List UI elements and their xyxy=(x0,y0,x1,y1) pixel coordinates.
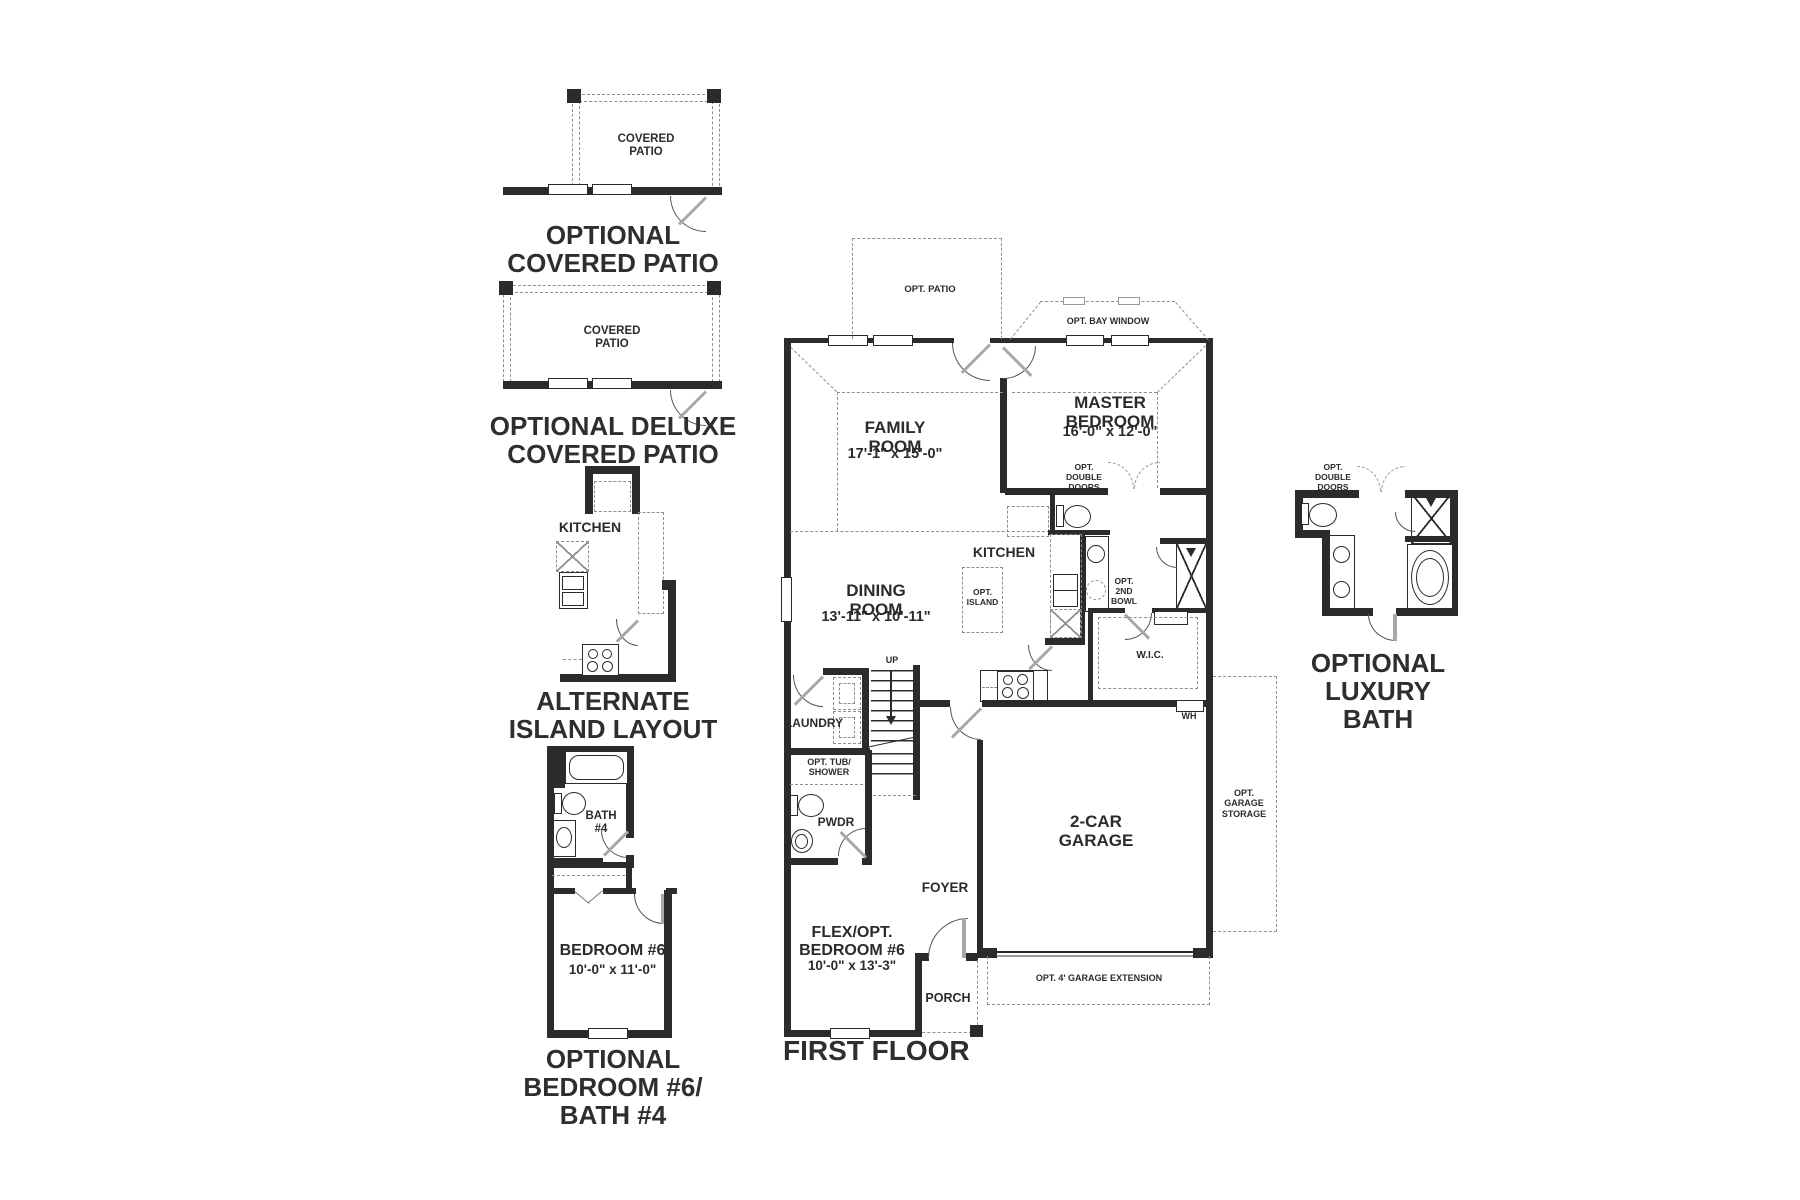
wall-garage-left xyxy=(977,740,983,955)
wall xyxy=(865,750,872,865)
wall xyxy=(788,748,870,755)
counter xyxy=(638,512,664,614)
opt-island-label: OPT. ISLAND xyxy=(963,588,1002,608)
wall xyxy=(913,665,920,800)
wall xyxy=(1396,608,1458,616)
burner xyxy=(1017,674,1028,685)
ceiling-line xyxy=(837,392,1003,393)
room-label: KITCHEN xyxy=(544,520,636,536)
wall xyxy=(603,888,636,894)
window xyxy=(588,1028,628,1039)
ceiling-line xyxy=(790,347,837,392)
inset-caption: OPTIONAL COVERED PATIO xyxy=(493,221,733,277)
toilet-tank xyxy=(1301,503,1309,525)
opt-double-door-arc xyxy=(1381,466,1405,492)
opt-2nd-bowl-label: OPT. 2ND BOWL xyxy=(1104,577,1144,606)
opt-cabinet xyxy=(1007,506,1049,537)
burner xyxy=(602,661,613,672)
shower-head xyxy=(1186,548,1196,557)
room-label: COVERED PATIO xyxy=(572,133,720,159)
bay-window-line xyxy=(1040,301,1175,302)
wall xyxy=(550,862,632,868)
toilet-tank xyxy=(1056,505,1064,527)
opt-appliance-box xyxy=(1050,609,1081,638)
stove xyxy=(582,644,619,676)
opt-bay-label: OPT. BAY WINDOW xyxy=(1058,316,1158,326)
toilet-tank xyxy=(554,793,562,814)
porch-edge xyxy=(977,960,978,1030)
room-label: BEDROOM #6 xyxy=(540,942,685,960)
door-arc xyxy=(634,894,664,924)
burner xyxy=(602,649,612,659)
stove xyxy=(997,671,1034,701)
sink-bowl xyxy=(1333,581,1350,598)
wall xyxy=(788,858,838,865)
inset-caption: OPTIONAL BEDROOM #6/ BATH #4 xyxy=(493,1045,733,1129)
wall xyxy=(1322,608,1373,616)
bathtub-basin xyxy=(569,755,624,780)
room-dims: 10'-0" x 13'-3" xyxy=(777,958,927,973)
opt-patio-label: OPT. PATIO xyxy=(880,285,980,296)
opt-double-doors-label: OPT. DOUBLE DOORS xyxy=(1307,463,1359,492)
bay-window-line xyxy=(1010,302,1041,340)
island-opt-box xyxy=(556,541,589,572)
sink-bowl xyxy=(1087,545,1105,563)
wall xyxy=(626,862,632,890)
sink-bowl xyxy=(556,827,572,848)
window xyxy=(1066,335,1104,346)
front-door-leaf xyxy=(962,918,966,958)
patio-post xyxy=(707,89,721,103)
toilet-bowl xyxy=(1309,503,1337,527)
patio-post xyxy=(567,89,581,103)
stairs-lower xyxy=(871,753,913,779)
bathtub-basin xyxy=(1416,558,1444,597)
toilet-tank xyxy=(790,795,798,816)
inset-caption: OPTIONAL DELUXE COVERED PATIO xyxy=(468,412,758,468)
porch-edge xyxy=(922,1032,972,1033)
opt-extension-label: OPT. 4' GARAGE EXTENSION xyxy=(1018,973,1180,983)
stairs-arrow-head xyxy=(886,716,896,725)
wall-divider xyxy=(1000,378,1007,493)
inset-caption: OPTIONAL LUXURY BATH xyxy=(1288,649,1468,733)
burner xyxy=(1003,675,1013,685)
wall xyxy=(1050,495,1055,533)
window xyxy=(548,184,588,195)
wall xyxy=(1045,638,1085,645)
opt-double-door-arc xyxy=(1108,462,1134,489)
opt-storage-label: OPT. GARAGE STORAGE xyxy=(1211,788,1277,819)
window xyxy=(781,577,792,622)
wall xyxy=(1088,608,1093,703)
bifold-door xyxy=(588,890,603,903)
plan-caption: FIRST FLOOR xyxy=(783,1036,1013,1066)
stairs-ceiling-line xyxy=(868,795,916,796)
toilet-bowl xyxy=(1064,505,1091,528)
opt-double-doors-label: OPT. DOUBLE DOORS xyxy=(1058,463,1110,492)
opt-2nd-bowl xyxy=(1086,580,1106,600)
shower-door-arc xyxy=(1156,547,1177,568)
wall xyxy=(668,588,676,682)
wh-label: WH xyxy=(1174,711,1204,721)
bay-window-tick xyxy=(1118,297,1140,305)
wall xyxy=(1088,608,1125,613)
shower-door-arc xyxy=(1395,512,1415,532)
toilet-bowl xyxy=(798,794,824,817)
burner xyxy=(1017,687,1029,699)
island-cabinet xyxy=(562,576,584,590)
stairs-up-label: UP xyxy=(878,655,906,665)
washer-inner xyxy=(839,683,855,704)
room-label: W.I.C. xyxy=(1125,650,1175,661)
floor-plan-canvas: COVERED PATIO OPTIONAL COVERED PATIO COV… xyxy=(0,0,1800,1200)
window xyxy=(592,378,632,389)
opt-double-door-arc xyxy=(1357,466,1381,492)
shower-head xyxy=(1426,498,1436,507)
door-arc xyxy=(1368,614,1396,641)
opt-tub-line xyxy=(790,784,868,785)
counter-line xyxy=(982,687,997,688)
inset-caption: ALTERNATE ISLAND LAYOUT xyxy=(483,687,743,743)
patio-post xyxy=(707,281,721,295)
room-label: FOYER xyxy=(907,880,983,895)
wall xyxy=(862,668,869,752)
room-label: PWDR xyxy=(812,816,860,829)
stairs-upper xyxy=(871,670,913,748)
window xyxy=(1111,335,1149,346)
room-label: PORCH xyxy=(916,991,980,1005)
wall-right-outer xyxy=(1206,338,1213,958)
patio-post xyxy=(499,281,513,295)
island-cabinet xyxy=(562,592,584,606)
wall xyxy=(585,466,593,514)
room-dims: 13'-11" x 10'-11" xyxy=(801,609,951,625)
garage-door-line xyxy=(997,951,1193,953)
window xyxy=(592,184,632,195)
sink-bowl-inner xyxy=(795,834,808,849)
wall xyxy=(1160,488,1213,495)
wall xyxy=(547,888,575,894)
burner xyxy=(587,661,598,672)
opt-double-door-arc xyxy=(1134,462,1160,489)
opt-cabinet xyxy=(594,481,631,512)
burner xyxy=(1002,687,1013,698)
window xyxy=(548,378,588,389)
stairs-arrow-line xyxy=(890,671,892,717)
closet-rod xyxy=(552,875,630,876)
ceiling-line xyxy=(1157,345,1206,392)
room-dims: 17'-1" x 15'-0" xyxy=(820,446,970,462)
room-label: FLEX/OPT. BEDROOM #6 xyxy=(777,924,927,960)
refrigerator xyxy=(1053,590,1078,607)
room-dims: 16'-0" x 12'-0" xyxy=(1035,424,1185,440)
room-label: KITCHEN xyxy=(958,545,1050,561)
door-leaf xyxy=(1393,614,1397,641)
wall xyxy=(862,858,872,865)
sink-bowl xyxy=(1333,546,1350,563)
bay-window-tick xyxy=(1063,297,1085,305)
wall-garage-top xyxy=(917,700,950,707)
room-label: 2-CAR GARAGE xyxy=(1021,812,1171,850)
opt-tub-label: OPT. TUB/ SHOWER xyxy=(790,757,868,778)
wall xyxy=(632,466,640,514)
room-label: LAUNDRY xyxy=(783,717,845,730)
room-dims: 10'-0" x 11'-0" xyxy=(540,962,685,977)
counter-line xyxy=(563,659,582,660)
room-label: COVERED PATIO xyxy=(537,325,687,351)
burner xyxy=(588,649,598,659)
refrigerator xyxy=(1053,574,1078,591)
bay-window-line xyxy=(1175,302,1209,340)
